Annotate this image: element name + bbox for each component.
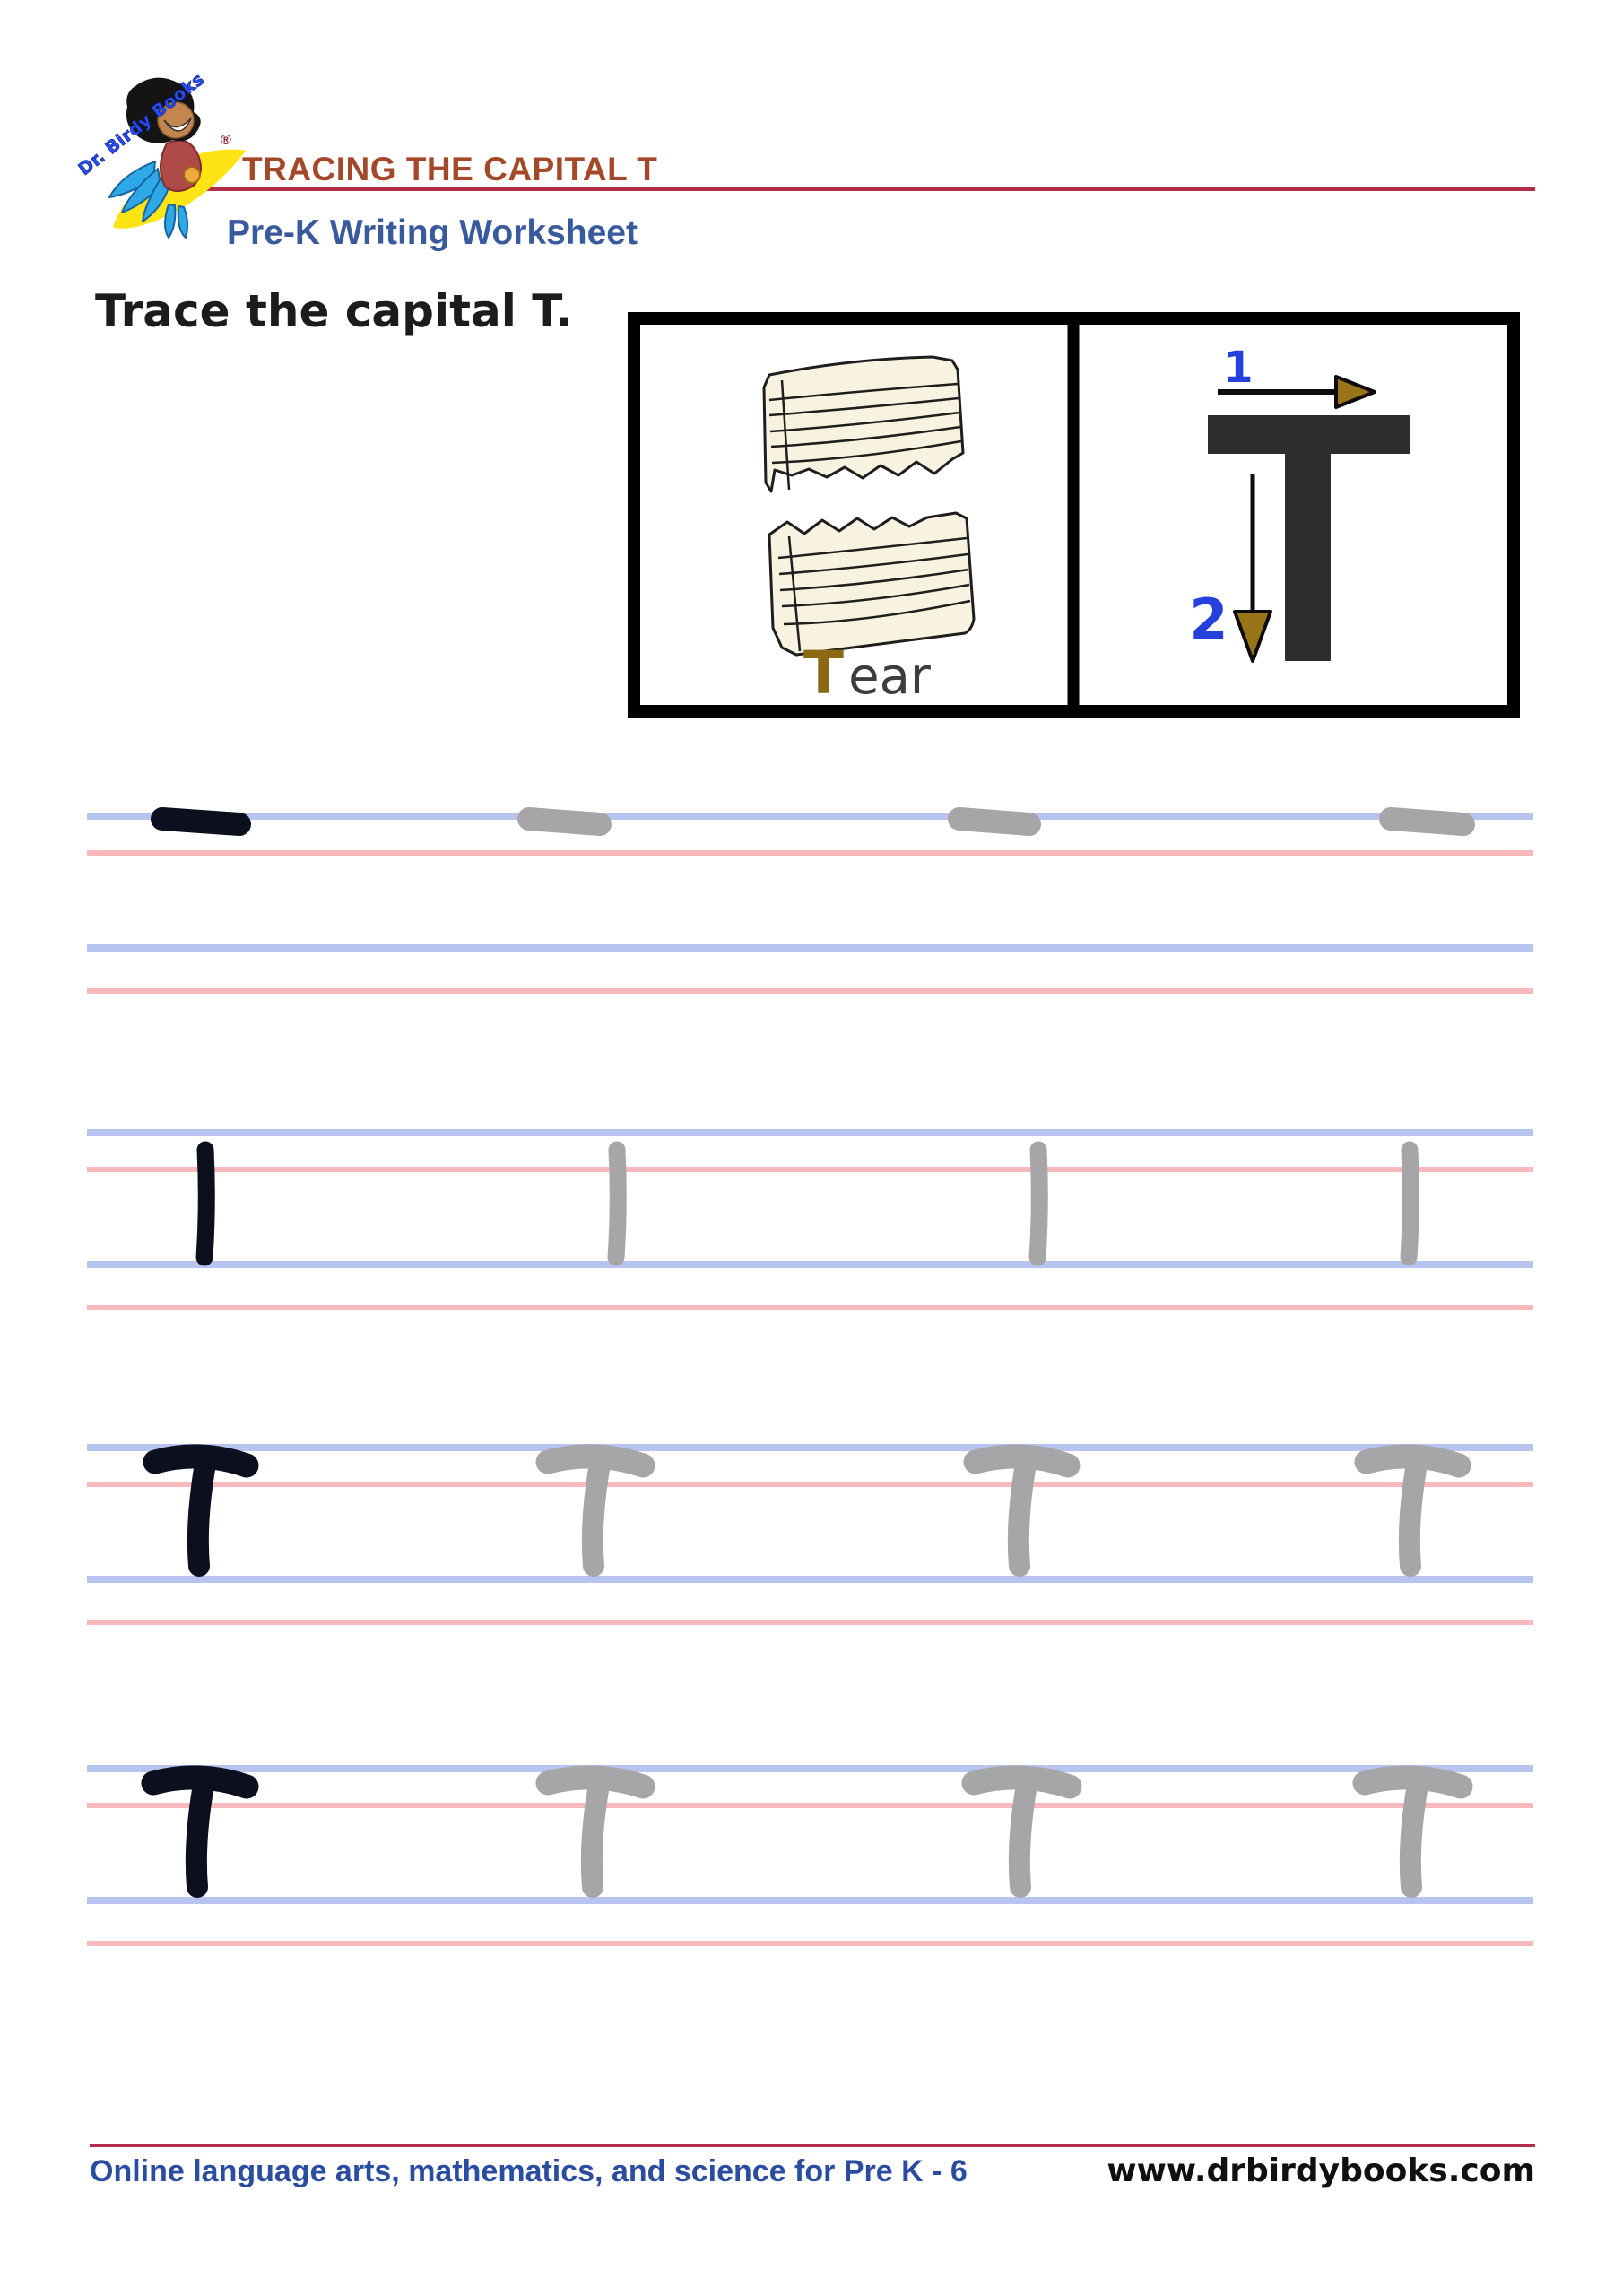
brand-logo: Dr. Birdy Books bbox=[70, 61, 249, 245]
stroke-order-diagram: 1 2 bbox=[1189, 343, 1410, 661]
picture-word-rest: ear bbox=[848, 648, 932, 706]
stroke-2-arrowhead bbox=[1235, 612, 1271, 661]
torn-paper-illustration bbox=[764, 357, 974, 655]
torn-paper-bottom-piece bbox=[769, 513, 974, 655]
logo-hand bbox=[184, 167, 200, 183]
picture-word-initial: T bbox=[803, 639, 844, 708]
stroke-1-arrowhead bbox=[1336, 377, 1375, 407]
stroke-1-number: 1 bbox=[1223, 343, 1253, 393]
worksheet-page: { "header": { "logo": { "brand_text": "D… bbox=[0, 0, 1623, 2296]
example-box: T ear 1 2 bbox=[0, 0, 1623, 2296]
logo-body bbox=[161, 141, 201, 191]
letter-T-stem bbox=[1285, 448, 1331, 661]
letter-T-bar bbox=[1208, 415, 1410, 454]
stroke-2-number: 2 bbox=[1189, 587, 1228, 652]
picture-word: T ear bbox=[803, 639, 932, 708]
